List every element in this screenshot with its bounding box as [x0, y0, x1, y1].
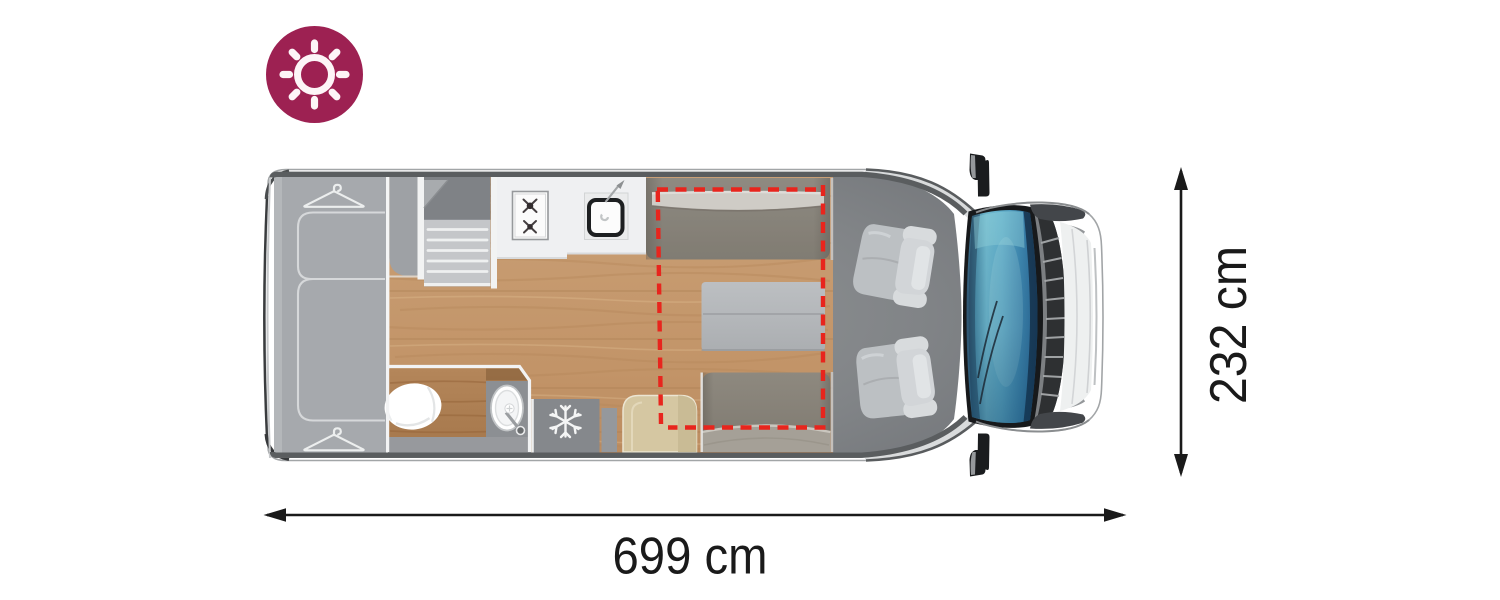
- svg-text:699 cm: 699 cm: [613, 528, 768, 586]
- svg-text:232 cm: 232 cm: [1200, 246, 1258, 404]
